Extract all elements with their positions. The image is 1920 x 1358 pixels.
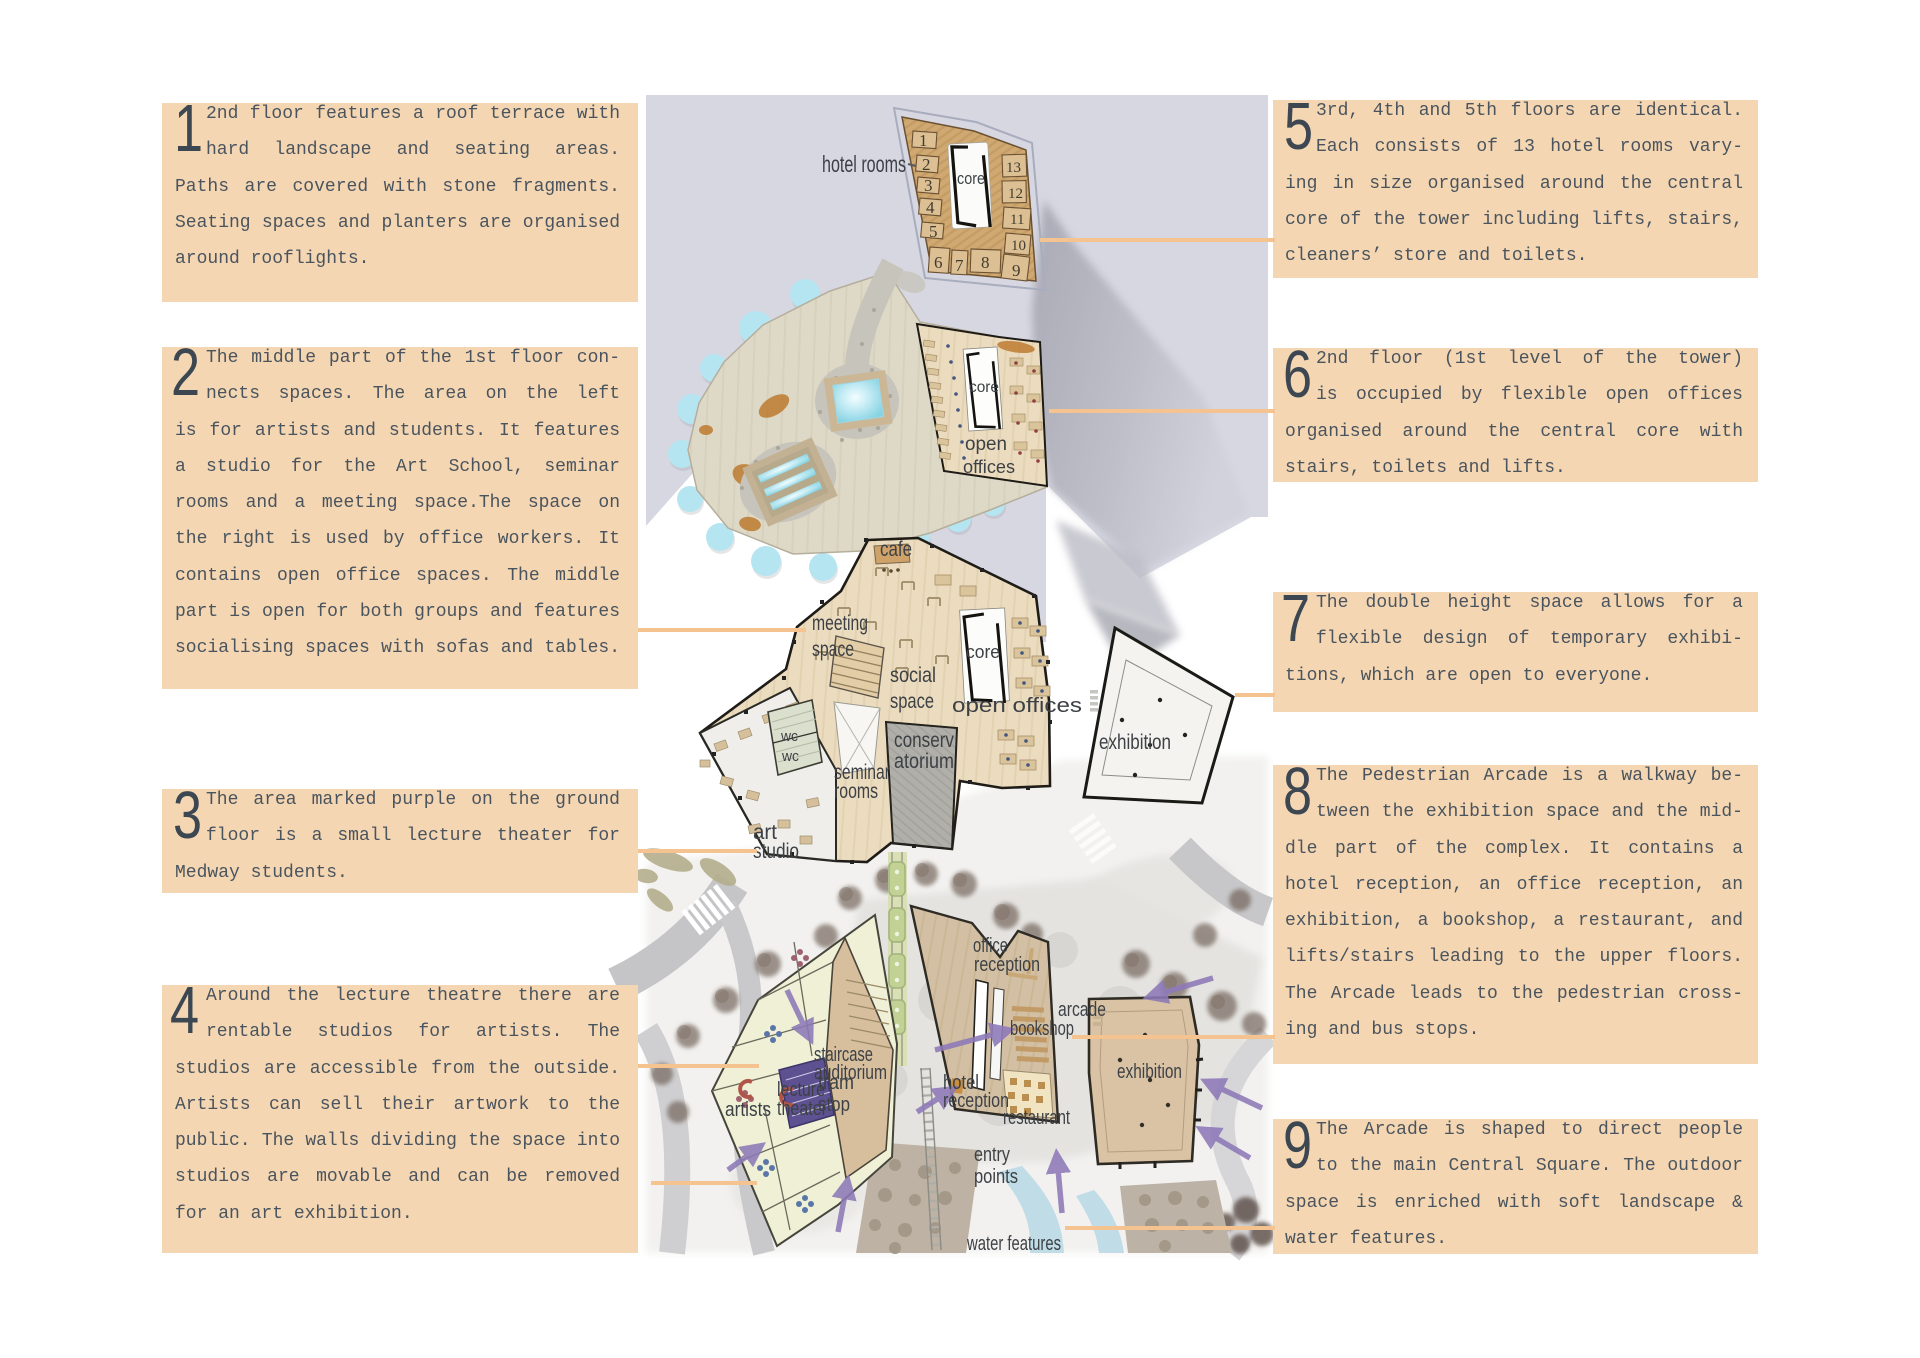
svg-text:11: 11 xyxy=(1010,212,1024,228)
svg-text:2: 2 xyxy=(922,155,931,174)
svg-text:theater: theater xyxy=(777,1098,827,1120)
svg-text:reception: reception xyxy=(974,954,1040,976)
svg-text:bookshop: bookshop xyxy=(1010,1018,1074,1040)
svg-text:wc: wc xyxy=(781,748,799,765)
svg-text:13: 13 xyxy=(1006,160,1021,176)
svg-text:meeting: meeting xyxy=(812,612,868,635)
svg-text:water features: water features xyxy=(966,1233,1061,1255)
svg-text:5: 5 xyxy=(929,222,938,241)
svg-text:wc: wc xyxy=(780,728,798,745)
svg-text:points: points xyxy=(974,1166,1018,1188)
svg-text:4: 4 xyxy=(926,198,935,217)
svg-text:6: 6 xyxy=(934,253,943,272)
svg-text:7: 7 xyxy=(955,256,964,275)
svg-text:space: space xyxy=(812,638,854,661)
svg-text:open offices: open offices xyxy=(952,695,1082,717)
svg-text:social: social xyxy=(890,664,936,687)
svg-text:atorium: atorium xyxy=(894,750,954,773)
svg-text:offices: offices xyxy=(963,457,1015,477)
svg-text:restaurant: restaurant xyxy=(1003,1107,1070,1129)
svg-text:core: core xyxy=(966,642,1000,662)
svg-text:9: 9 xyxy=(1012,261,1021,280)
svg-text:entry: entry xyxy=(974,1144,1010,1166)
svg-text:studio: studio xyxy=(753,840,799,863)
svg-text:core: core xyxy=(969,379,999,396)
svg-text:conserv: conserv xyxy=(894,729,954,752)
svg-text:12: 12 xyxy=(1008,186,1023,202)
svg-text:exhibition: exhibition xyxy=(1099,731,1171,754)
svg-text:reception: reception xyxy=(943,1090,1009,1112)
svg-text:space: space xyxy=(890,690,934,713)
svg-text:exhibition: exhibition xyxy=(1117,1061,1182,1083)
svg-text:hotel rooms: hotel rooms xyxy=(822,151,906,177)
svg-text:cafe: cafe xyxy=(880,538,912,561)
svg-text:8: 8 xyxy=(981,253,990,272)
svg-text:artists: artists xyxy=(725,1099,771,1121)
svg-text:core: core xyxy=(957,169,985,188)
svg-text:3: 3 xyxy=(924,176,933,195)
svg-text:rooms: rooms xyxy=(834,780,878,803)
svg-text:10: 10 xyxy=(1011,238,1026,254)
svg-text:1: 1 xyxy=(919,131,928,150)
svg-text:open: open xyxy=(965,434,1007,455)
